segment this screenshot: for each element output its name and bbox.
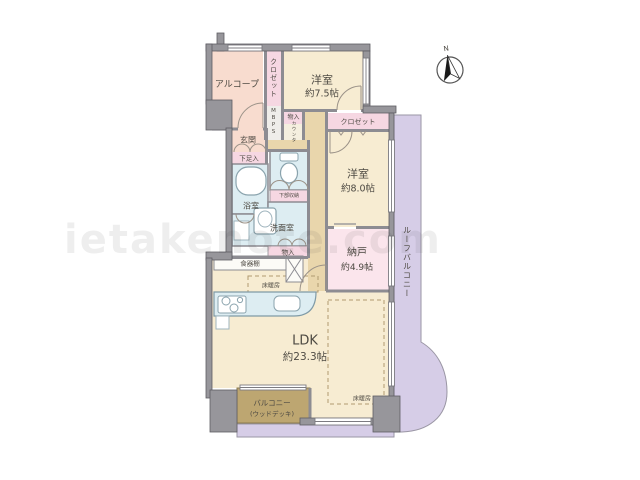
- floorplan-canvas: アルコープ クロゼット 洋室 約7.5帖 MBPS 物入 カウンタ 玄関 下足入…: [0, 0, 640, 480]
- label-bedroom2-size: 約8.0帖: [341, 183, 376, 195]
- label-bathroom: 浴室: [243, 201, 259, 211]
- window-ldk-right: [389, 302, 395, 386]
- toilet-tank-icon: [280, 153, 298, 161]
- label-balcony-line1: バルコニー: [253, 399, 290, 408]
- wall-block-bottom-right: [373, 396, 400, 432]
- toilet-icon: [281, 163, 298, 183]
- label-entrance: 玄関: [240, 135, 256, 145]
- label-meter-box: MBPS: [271, 108, 277, 136]
- sink-icon: [274, 296, 300, 311]
- wall-step-top-right: [363, 106, 396, 113]
- window-bedroom2-right: [389, 140, 395, 212]
- label-bedroom2-name: 洋室: [347, 167, 369, 181]
- window-bedroom1-right: [363, 58, 369, 104]
- label-balcony-line2: (ウッドデッキ): [250, 409, 294, 418]
- label-shoe-cabinet: 下足入: [239, 155, 259, 163]
- label-floor-heating-kitchen: 床暖房: [262, 282, 280, 290]
- watermark-text: ietakenote.com: [64, 217, 442, 263]
- label-closet-top: クロゼット: [270, 58, 278, 98]
- wall-block-bottom-left: [210, 390, 237, 432]
- compass-icon: N: [433, 43, 465, 85]
- label-floor-heating-living: 床暖房: [353, 395, 371, 403]
- label-storage-top: 物入: [287, 113, 299, 121]
- label-counter: カウンタ: [291, 121, 296, 143]
- label-toilet-lower-storage: 下部収納: [279, 192, 299, 199]
- compass-north-label: N: [443, 44, 450, 53]
- label-ldk-size: 約23.3帖: [283, 350, 328, 363]
- window-top-alcove: [228, 45, 262, 51]
- wall-left-top: [206, 44, 212, 104]
- kitchen-end-cabinet: [216, 316, 229, 329]
- window-ldk-deck: [240, 385, 306, 390]
- bathtub-icon: [236, 167, 266, 195]
- label-bedroom1-size: 約7.5帖: [305, 88, 340, 100]
- label-closet2: クロゼット: [341, 117, 376, 126]
- label-alcove: アルコープ: [215, 79, 259, 90]
- room-balcony-strip: [237, 424, 394, 437]
- floorplan-svg: アルコープ クロゼット 洋室 約7.5帖 MBPS 物入 カウンタ 玄関 下足入…: [0, 0, 640, 480]
- label-ldk-name: LDK: [292, 334, 318, 349]
- label-bedroom1-name: 洋室: [311, 73, 333, 87]
- window-ldk-bottom: [315, 418, 371, 425]
- wall-block-entrance-left: [206, 100, 232, 130]
- wall-left-kitchen: [206, 258, 212, 398]
- window-top-bedroom1: [292, 45, 330, 51]
